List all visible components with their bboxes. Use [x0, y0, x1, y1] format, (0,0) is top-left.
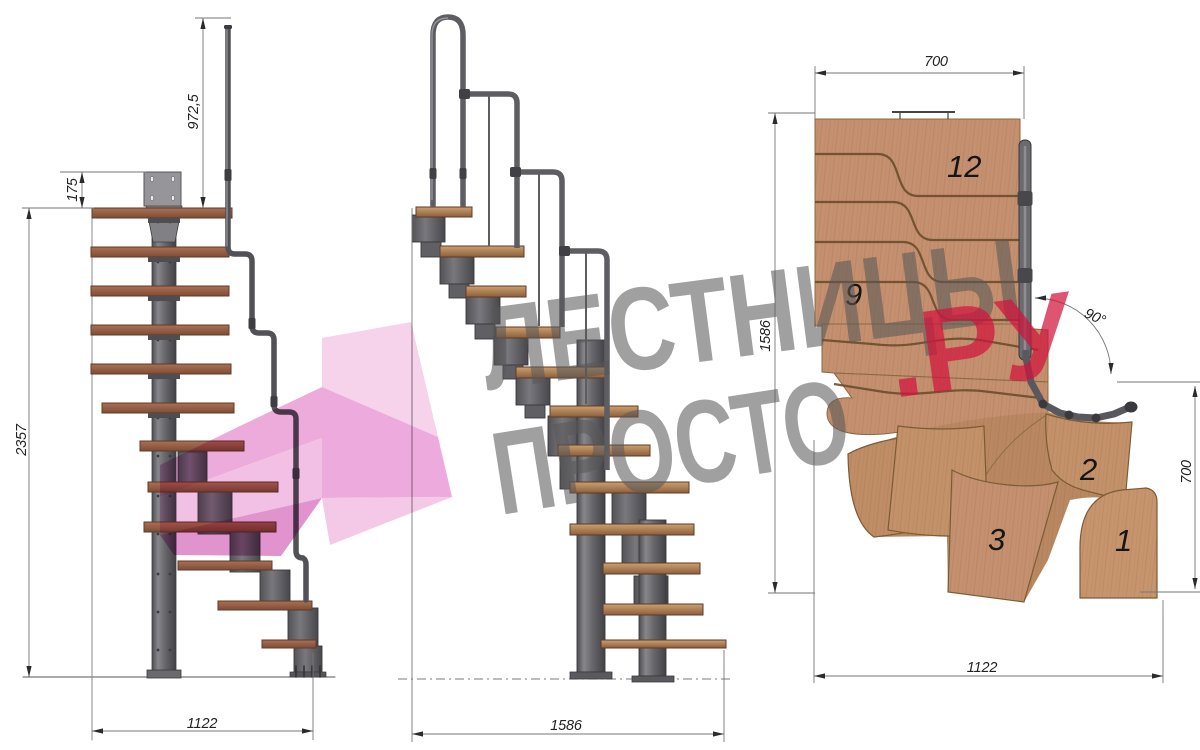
svg-text:3: 3 [988, 522, 1005, 557]
svg-text:1122: 1122 [187, 716, 218, 732]
svg-text:1: 1 [1115, 523, 1132, 558]
svg-text:2: 2 [1079, 452, 1097, 487]
svg-text:175: 175 [65, 177, 81, 202]
svg-text:700: 700 [1179, 460, 1195, 484]
svg-text:2357: 2357 [14, 423, 30, 457]
svg-text:12: 12 [947, 149, 981, 184]
svg-text:.РУ: .РУ [878, 267, 1084, 424]
svg-text:972,5: 972,5 [186, 93, 202, 129]
svg-text:1122: 1122 [967, 660, 998, 676]
svg-text:1586: 1586 [550, 718, 583, 734]
svg-text:700: 700 [924, 54, 948, 70]
